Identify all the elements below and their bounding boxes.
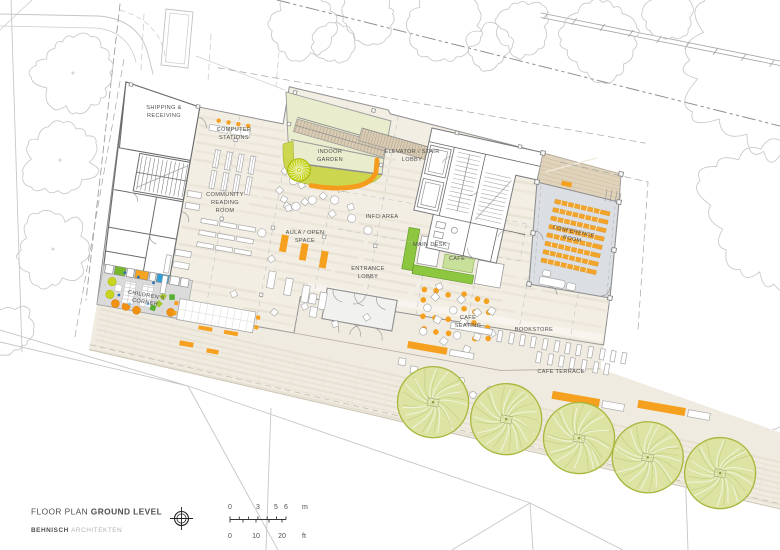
- svg-text:GARDEN: GARDEN: [317, 157, 343, 163]
- svg-text:3: 3: [256, 504, 260, 511]
- svg-text:LOBBY: LOBBY: [358, 274, 378, 280]
- svg-text:LOBBY: LOBBY: [402, 157, 422, 163]
- svg-text:CAFE TERRACE: CAFE TERRACE: [537, 369, 584, 375]
- svg-text:ENTRANCE: ENTRANCE: [351, 266, 385, 272]
- svg-text:READING: READING: [211, 200, 239, 206]
- svg-text:10: 10: [252, 533, 260, 540]
- svg-text:CAFE: CAFE: [460, 315, 476, 321]
- svg-text:6: 6: [284, 504, 288, 511]
- svg-text:COMPUTER: COMPUTER: [217, 127, 252, 133]
- svg-text:COMMUNITY: COMMUNITY: [206, 192, 244, 198]
- svg-text:0: 0: [228, 504, 232, 511]
- svg-text:MAIN DESK: MAIN DESK: [413, 242, 447, 248]
- svg-text:AULA / OPEN: AULA / OPEN: [286, 230, 325, 236]
- svg-text:ft: ft: [302, 533, 306, 540]
- svg-text:RECEIVING: RECEIVING: [147, 113, 181, 119]
- svg-text:0: 0: [228, 533, 232, 540]
- svg-text:m: m: [302, 504, 308, 511]
- svg-text:SHIPPING &: SHIPPING &: [146, 105, 182, 111]
- svg-text:SEATING: SEATING: [455, 323, 482, 329]
- svg-text:ROOM: ROOM: [216, 208, 235, 214]
- svg-text:INFO AREA: INFO AREA: [366, 214, 399, 220]
- svg-text:5: 5: [274, 504, 278, 511]
- svg-text:SPACE: SPACE: [295, 238, 315, 244]
- svg-text:CAFÉ: CAFÉ: [449, 255, 465, 262]
- svg-text:ELEVATOR / STAIR: ELEVATOR / STAIR: [384, 149, 439, 155]
- svg-text:BEHNISCH ARCHITEKTEN: BEHNISCH ARCHITEKTEN: [31, 527, 122, 534]
- svg-text:20: 20: [278, 533, 286, 540]
- svg-text:STATIONS: STATIONS: [219, 135, 249, 141]
- svg-text:INDOOR: INDOOR: [318, 149, 342, 155]
- svg-text:FLOOR PLAN GROUND LEVEL: FLOOR PLAN GROUND LEVEL: [31, 507, 162, 517]
- svg-text:BOOKSTORE: BOOKSTORE: [515, 327, 553, 333]
